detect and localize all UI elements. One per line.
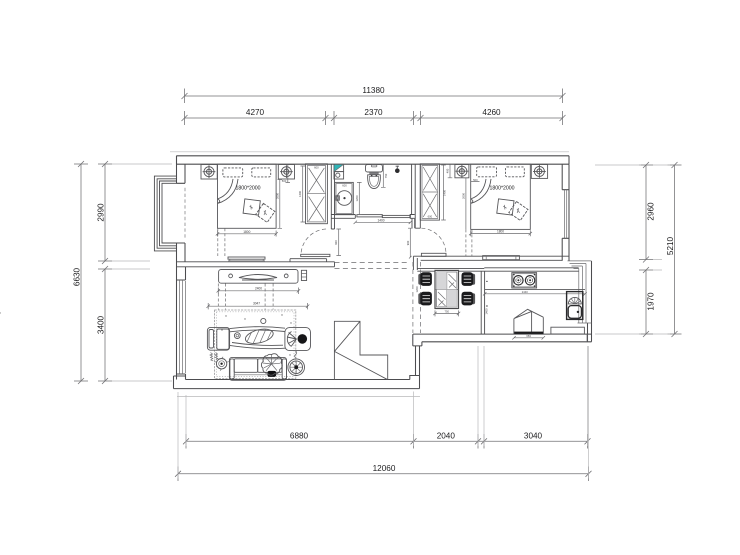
svg-text:2370: 2370 [364, 108, 383, 117]
svg-text:4260: 4260 [482, 108, 501, 117]
svg-text:500: 500 [473, 178, 478, 182]
svg-text:4270: 4270 [246, 108, 265, 117]
svg-text:5210: 5210 [666, 236, 675, 255]
svg-text:6630: 6630 [73, 267, 82, 286]
svg-text:600: 600 [342, 183, 347, 187]
svg-text:1200: 1200 [415, 286, 419, 292]
svg-text:683: 683 [526, 334, 531, 338]
svg-text:1800*2000: 1800*2000 [235, 186, 260, 192]
svg-text:2400: 2400 [255, 286, 262, 290]
svg-text:750: 750 [445, 309, 450, 313]
svg-text:1400: 1400 [485, 308, 489, 314]
svg-text:900: 900 [334, 240, 338, 245]
svg-text:400: 400 [446, 168, 450, 173]
svg-text:2040: 2040 [437, 432, 456, 441]
svg-text:12060: 12060 [373, 464, 396, 473]
svg-text:2000: 2000 [275, 193, 279, 199]
svg-text:2000: 2000 [461, 193, 465, 199]
svg-text:1200: 1200 [355, 195, 359, 201]
svg-text:1800: 1800 [243, 230, 250, 234]
svg-text:600: 600 [428, 215, 433, 219]
svg-text:900: 900 [406, 240, 410, 245]
svg-text:1800*2000: 1800*2000 [489, 186, 514, 192]
svg-text:3400: 3400 [97, 315, 106, 334]
svg-text:1400: 1400 [377, 218, 384, 222]
svg-text:2440: 2440 [522, 290, 528, 294]
svg-text:3040: 3040 [524, 432, 543, 441]
svg-text:2990: 2990 [97, 203, 106, 222]
svg-text:500: 500 [282, 179, 287, 183]
svg-text:600: 600 [314, 165, 319, 169]
svg-text:750: 750 [384, 173, 388, 178]
svg-text:1400: 1400 [443, 190, 447, 196]
svg-text:1970: 1970 [647, 292, 656, 311]
svg-text:1400: 1400 [298, 191, 302, 197]
svg-text:11380: 11380 [362, 86, 385, 95]
svg-text:6880: 6880 [290, 432, 309, 441]
svg-text:3047: 3047 [253, 302, 260, 306]
svg-text:2960: 2960 [647, 202, 656, 221]
svg-text:1800: 1800 [497, 230, 504, 234]
